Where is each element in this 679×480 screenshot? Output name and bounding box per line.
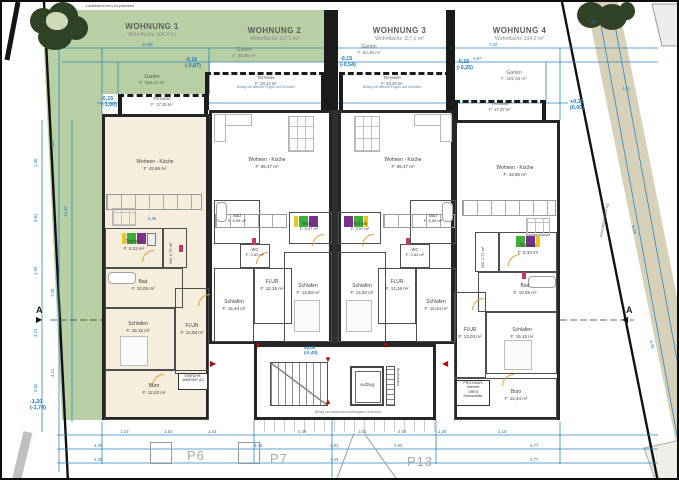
room-label-w2-technik: TechnikF: 5,97 m² <box>288 222 330 231</box>
room-label-w4-schlafen: SchlafenF: 15,15 m² <box>494 328 550 339</box>
paving-note: Belag auf wasserdurchlässigem Unterbau <box>298 410 398 414</box>
garden-label-w1: GartenF: 162,27 m² <box>122 74 182 86</box>
room-label-w3-wohnen: Wohnen - KücheF: 55,47 m² <box>368 158 438 169</box>
dining-table-w1 <box>112 208 136 226</box>
room-label-w1-bad: BadF: 10,05 m² <box>114 280 172 291</box>
room-w4-wc <box>475 232 499 272</box>
dim-label: 2,02 <box>398 429 406 434</box>
header-w1: WOHNUNG 1Wohnfläche 104,2 m² <box>97 22 207 38</box>
dim-label: 1,26 <box>438 429 446 434</box>
neighbor-top-right <box>652 4 679 46</box>
garden-label-w2: GartenF: 48,85 m² <box>214 47 274 59</box>
room-label-w3-technik: TechnikF: 5,97 m² <box>339 222 381 231</box>
entrance-paving <box>254 420 436 432</box>
room-label-w1-technik: TechnikF: 8,22 m² <box>108 240 160 251</box>
room-w1-wc <box>163 228 187 268</box>
dim-label: 4,21 <box>50 369 55 377</box>
header-w4: WOHNUNG 4Wohnfläche 104,2 m² <box>462 26 577 42</box>
valve-mark <box>179 245 183 252</box>
garden-label-w4: GartenF: 202,65 m² <box>484 70 544 82</box>
mailboxes-label: Briefkästen <box>396 368 400 406</box>
dining-table-w3 <box>354 116 380 152</box>
entrance-arrow: ▼ <box>324 356 332 364</box>
section-arrow-right: ◀ <box>622 316 628 324</box>
dim-label: 14,43 <box>63 206 68 217</box>
room-label-w1-wc: WC 2,72 m² <box>169 234 174 264</box>
dim-label: 4,77 <box>530 443 538 448</box>
room-label-w2-schlafen2: SchlafenF: 14,50 m² <box>286 284 330 295</box>
dim-label: 3,48 <box>298 429 306 434</box>
dim-label: 1,35 <box>33 159 38 167</box>
plot-boundary-left <box>44 2 68 480</box>
tree-note: Laubbaum neu zu pflanzen <box>86 3 134 8</box>
room-label-w4-wohnen: Wohnen - KücheF: 42,86 m² <box>480 166 550 177</box>
road-mark <box>364 433 398 480</box>
garden-label-w3: GartenF: 52,38 m² <box>339 44 399 56</box>
dining-table-w4 <box>526 218 550 236</box>
dim-label: 2,02 <box>394 443 402 448</box>
room-label-w4-bad: BadF: 10,05 m² <box>496 284 554 295</box>
elevation-label: -1,20(-1,74) <box>30 400 46 412</box>
dim-label: 3,87 <box>50 139 55 147</box>
room-label-w4-wc: WC 2,72 m² <box>481 238 486 268</box>
tree-icon <box>577 2 637 32</box>
dim-label: 1,52 <box>164 429 172 434</box>
room-label-w2-bad: BadF: 8,08 m² <box>216 214 258 223</box>
section-marker-a-right: A <box>626 306 633 315</box>
entrance-arrow: ▶ <box>210 360 216 368</box>
dim-label: 14,96 <box>142 42 153 47</box>
room-label-w3-schlafen2: SchlafenF: 15,44 m² <box>416 300 456 311</box>
header-w2: WOHNUNG 2Wohnfläche 117,1 m² <box>217 26 332 42</box>
elevation-label: -0,15(-0,25) <box>457 60 473 72</box>
terrace-label-w3: TerrasseF: 23,29 m² Belag mit offenen Fu… <box>360 75 424 89</box>
sofa-w2 <box>214 114 226 142</box>
entrance-arrow: ◀ <box>442 360 448 368</box>
dim-label: 1,01 <box>358 429 366 434</box>
dim-label: 4,87 <box>473 56 481 61</box>
elevator: Aufzug <box>350 366 384 406</box>
entrance-arrow: ▲ <box>324 398 332 406</box>
sidewalk-bottom-left <box>16 432 28 480</box>
mailboxes <box>386 366 395 406</box>
dim-label: 4,77 <box>530 457 538 462</box>
room-label-w1-schlafen: SchlafenF: 15,15 m² <box>108 322 168 333</box>
room-label-w1-buero: BüroF: 12,83 m² <box>126 384 182 395</box>
header-w3: WOHNUNG 3Wohnfläche 117,1 m² <box>342 26 457 42</box>
dim-label: 5,36 <box>148 216 156 221</box>
room-label-w3-bad: BadF: 8,08 m² <box>412 214 454 223</box>
dining-table-w2 <box>288 116 314 152</box>
elevation-label: +0,15(0,00) <box>570 100 584 112</box>
section-arrow-left: ▶ <box>36 316 42 324</box>
elevation-label: -0,15(-0,54) <box>340 57 356 69</box>
parcel-label-p6: P6 <box>187 448 205 463</box>
valve-mark <box>522 272 526 279</box>
room-label-w1-flur: FLURF: 13,08 m² <box>176 324 208 335</box>
sofa-w3 <box>440 114 452 142</box>
section-marker-a-left: A <box>36 306 43 315</box>
kitchen-counter-w4 <box>462 200 556 216</box>
room-label-w4-technik: TechnikF: 8,33 m² <box>504 244 552 255</box>
dim-label: 1,93 <box>33 267 38 275</box>
dim-label: 4,39 <box>94 443 102 448</box>
bed-w1 <box>120 336 148 366</box>
parcel-label-p13: P13 <box>407 454 433 469</box>
terrace-label-w1: TerrasseF: 17,28 m² <box>128 96 196 107</box>
dim-label: 1,10 <box>498 429 506 434</box>
dim-label: 1,10 <box>120 429 128 434</box>
elevation-label: -0,15(-1,00) <box>101 97 117 109</box>
room-label-w3-schlafen1: SchlafenF: 14,50 m² <box>340 284 384 295</box>
valve-mark <box>406 238 410 245</box>
parcel-mark <box>150 442 172 464</box>
terrace-label-w2: TerrasseF: 23,14 m² Belag mit offenen Fu… <box>234 75 298 89</box>
floor-plan-canvas: Laubbaum neu zu pflanzen <box>0 0 679 480</box>
utility-meter-box: PROXIMUSInternet ORESStromzähler <box>456 380 490 406</box>
neighbor-top-left <box>7 2 18 60</box>
road-mark <box>336 433 354 480</box>
dim-label: 7,35 <box>50 289 55 297</box>
room-label-w2-wohnen: Wohnen - KücheF: 55,47 m² <box>232 158 302 169</box>
room-label-w4-flur: FLURF: 13,03 m² <box>454 328 486 339</box>
room-label-w2-wc: WCF: 4,63 m² <box>241 248 269 257</box>
dim-label: 1,81 <box>330 443 338 448</box>
room-label-w3-flur: FLURF: 12,26 m² <box>379 280 415 291</box>
bed-w3 <box>346 300 372 332</box>
elevator-label: Aufzug <box>352 382 382 387</box>
bed-w2 <box>294 300 320 332</box>
room-label-w2-flur: FLURF: 12,26 m² <box>254 280 290 291</box>
parcel-mark <box>238 442 260 464</box>
water-supply-box: EINFÜHR.WASSER (D) <box>178 373 208 390</box>
elevation-label: ±0,00(-0,43) <box>304 346 318 356</box>
entrance-arrow: ▼ <box>382 342 390 350</box>
dim-label: 7,44 <box>330 457 338 462</box>
tree-icon <box>30 2 90 54</box>
room-label-w1-wohnen: Wohnen - KücheF: 42,86 m² <box>120 160 190 171</box>
room-label-w2-schlafen1: SchlafenF: 15,44 m² <box>214 300 254 311</box>
valve-mark <box>252 238 256 245</box>
dim-label: 2,02 <box>33 384 38 392</box>
parcel-label-p7: P7 <box>270 451 288 466</box>
elevator-car <box>355 371 381 403</box>
elevation-label: -0,15(-0,87) <box>185 58 201 70</box>
room-label-w3-wc: WCF: 4,63 m² <box>401 248 429 257</box>
dim-label: 7,32 <box>489 42 497 47</box>
dim-label: 4,39 <box>94 457 102 462</box>
terrace-label-w4: TerrasseF: 17,37 m² <box>466 101 534 112</box>
bed-w4 <box>504 340 532 370</box>
room-label-w4-buero: BüroF: 12,44 m² <box>488 390 544 401</box>
neighbor-bottom-right <box>644 440 679 480</box>
dim-label: 4,21 <box>33 329 38 337</box>
staircase <box>270 362 328 406</box>
dim-label: 3,81 <box>33 214 38 222</box>
dim-label: 1,43 <box>208 429 216 434</box>
entrance-arrow: ▼ <box>254 342 262 350</box>
